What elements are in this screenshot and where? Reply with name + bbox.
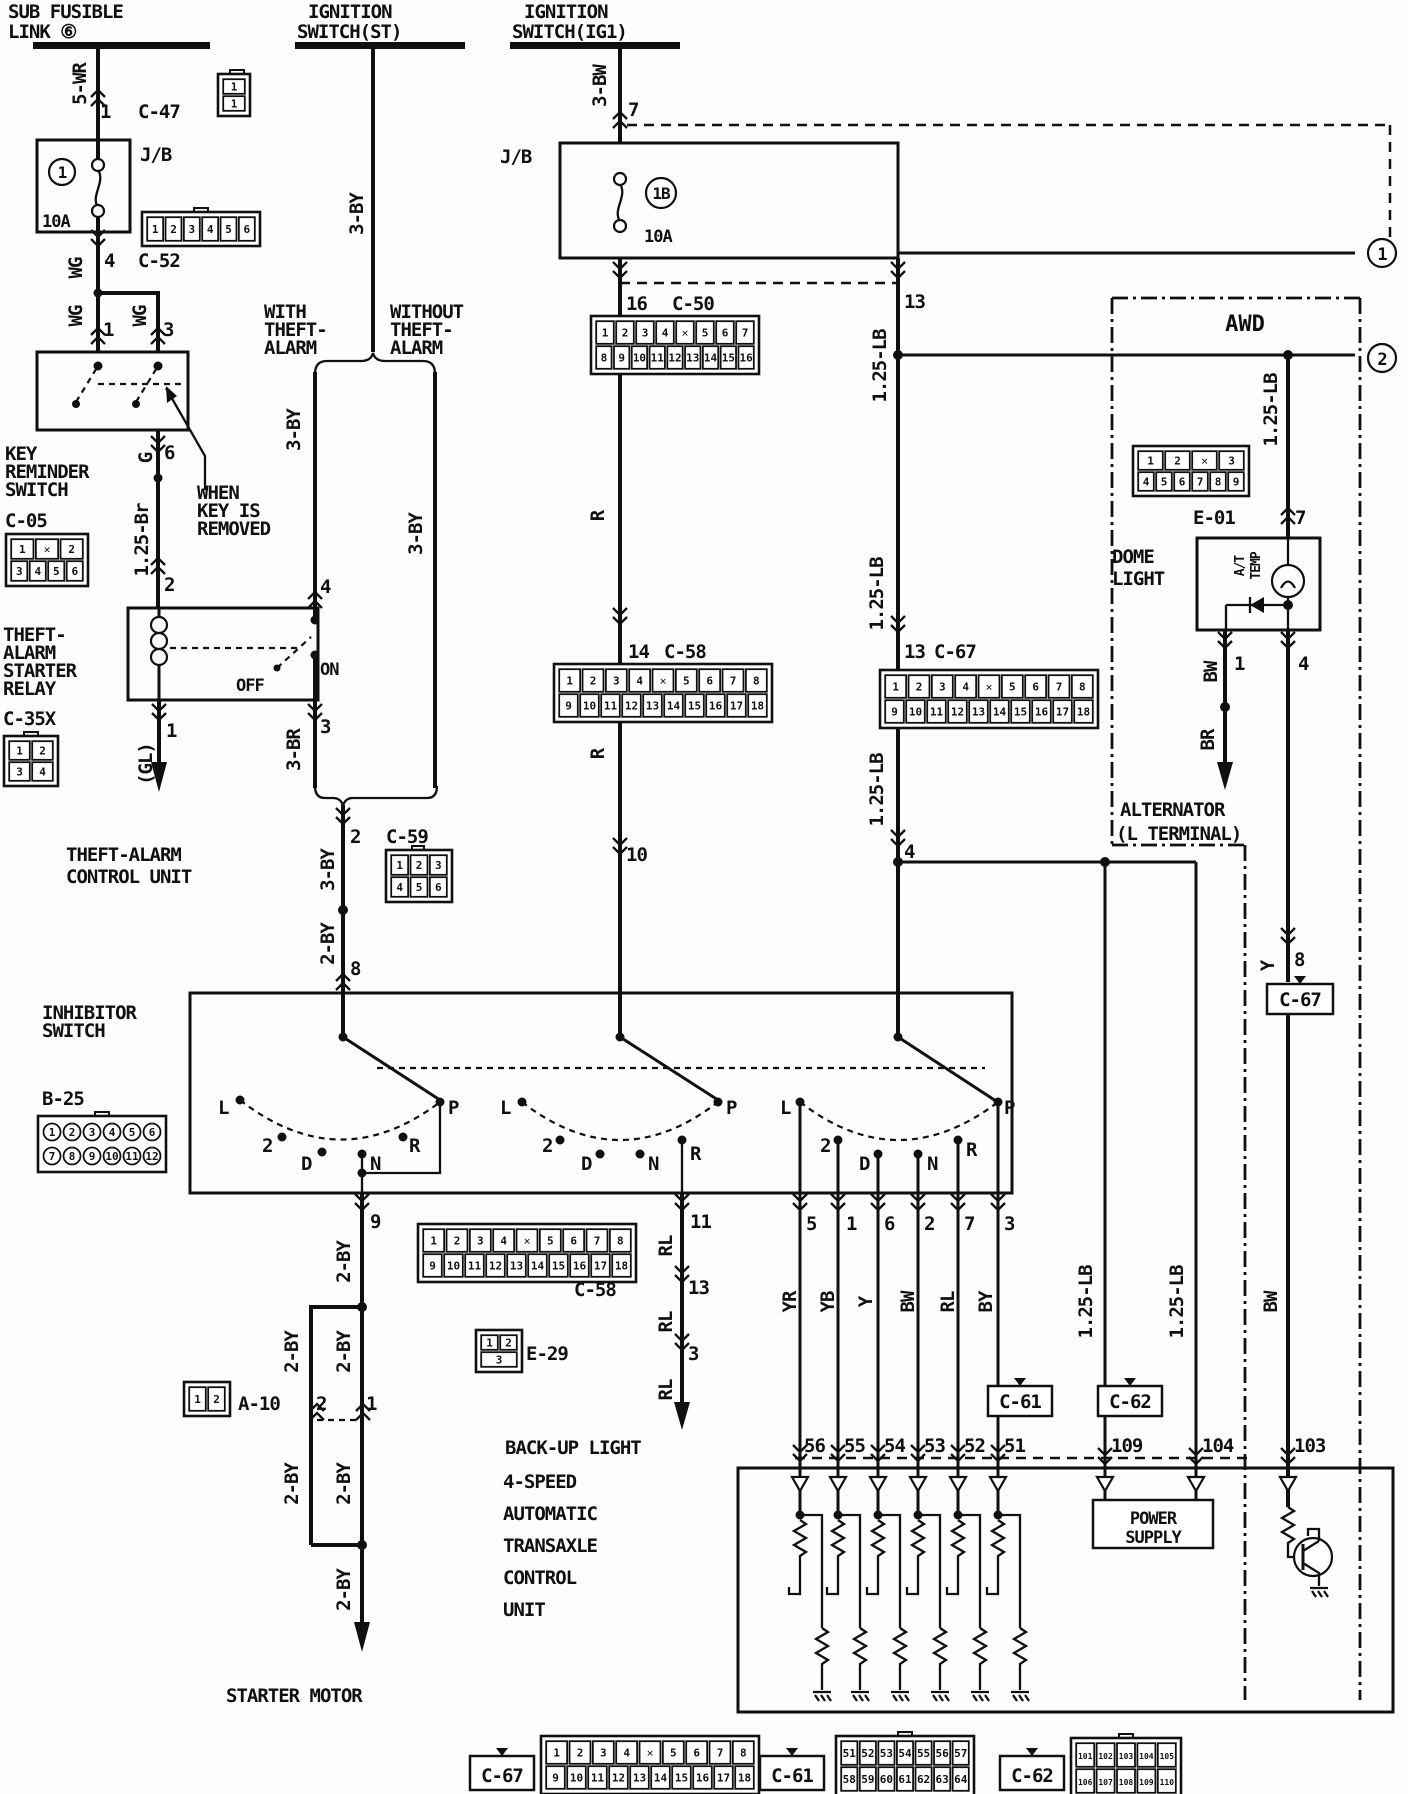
- wire-2by-1: 2-BY: [333, 1240, 355, 1283]
- tag-c62-bottom: C-62: [1011, 1765, 1053, 1787]
- svg-text:3: 3: [16, 565, 23, 578]
- label-with-3: ALARM: [264, 337, 317, 359]
- pin-dome-4: 4: [1298, 653, 1309, 675]
- svg-text:110: 110: [1160, 1778, 1175, 1787]
- svg-text:3: 3: [435, 859, 442, 872]
- svg-text:5: 5: [129, 1126, 136, 1139]
- svg-text:55: 55: [917, 1747, 930, 1760]
- svg-text:13: 13: [510, 1260, 523, 1273]
- svg-text:14: 14: [993, 706, 1007, 719]
- svg-text:2: 2: [170, 223, 177, 236]
- svg-text:7: 7: [1197, 476, 1204, 489]
- svg-text:60: 60: [880, 1773, 893, 1786]
- svg-text:2: 2: [39, 745, 46, 758]
- svg-text:3: 3: [189, 223, 196, 236]
- label-e01: E-01: [1193, 507, 1235, 529]
- svg-text:63: 63: [936, 1773, 949, 1786]
- wire-rl4: RL: [937, 1291, 959, 1312]
- svg-text:17: 17: [594, 1260, 607, 1273]
- svg-text:17: 17: [1056, 706, 1069, 719]
- svg-text:1: 1: [1147, 455, 1154, 468]
- svg-text:18: 18: [1077, 706, 1090, 719]
- svg-text:8: 8: [617, 1235, 624, 1248]
- svg-text:2: 2: [69, 1126, 76, 1139]
- wire-bw-right: BW: [1260, 1290, 1282, 1312]
- svg-text:4: 4: [34, 565, 41, 578]
- wire-125br: 1.25-Br: [131, 503, 153, 577]
- label-power-2: SUPPLY: [1125, 1528, 1182, 1548]
- wire-2by-merge: 2-BY: [317, 922, 339, 965]
- fuse1-number: 1: [58, 163, 67, 182]
- fuse2-number: 1B: [652, 184, 671, 203]
- svg-text:5: 5: [683, 675, 690, 688]
- label-c58-2: C-58: [574, 1279, 616, 1301]
- pin-dome-1: 1: [1234, 653, 1245, 675]
- svg-text:4: 4: [207, 223, 214, 236]
- svg-text:5: 5: [416, 881, 423, 894]
- svg-text:102: 102: [1098, 1752, 1113, 1761]
- sw1-pos-r: R: [409, 1135, 421, 1157]
- pin-krs-1: 1: [103, 319, 114, 341]
- wire-3by-st: 3-BY: [346, 192, 368, 235]
- svg-text:✕: ✕: [1201, 455, 1208, 468]
- svg-text:13: 13: [972, 706, 985, 719]
- svg-text:64: 64: [954, 1773, 968, 1786]
- label-without-3: ALARM: [390, 337, 443, 359]
- label-at-temp-1: A/T: [1233, 555, 1248, 577]
- sw2-pos-d: D: [581, 1153, 592, 1175]
- svg-text:12: 12: [489, 1260, 502, 1273]
- label-dome-2: LIGHT: [1112, 568, 1165, 590]
- wire-2by-3: 2-BY: [333, 1330, 355, 1373]
- svg-text:2: 2: [577, 1747, 584, 1760]
- pin-c67-8: 8: [1294, 949, 1305, 971]
- svg-text:10: 10: [633, 352, 646, 365]
- svg-text:2: 2: [454, 1235, 461, 1248]
- fuse1-rating: 10A: [42, 212, 70, 232]
- pin-c47-1: 1: [100, 101, 111, 123]
- svg-text:7: 7: [730, 675, 737, 688]
- sw2-pos-p: P: [726, 1097, 737, 1119]
- label-c50: C-50: [672, 293, 714, 315]
- svg-text:9: 9: [618, 352, 625, 365]
- pin-tcu-55: 55: [844, 1435, 865, 1457]
- pin-tcu-54: 54: [884, 1435, 905, 1457]
- svg-text:1: 1: [602, 327, 609, 340]
- svg-text:6: 6: [1179, 476, 1186, 489]
- pin-tcu-104: 104: [1202, 1435, 1234, 1457]
- wire-3br: 3-BR: [283, 728, 305, 771]
- svg-text:5: 5: [1009, 681, 1016, 694]
- pin-inhibitor-11: 11: [690, 1211, 711, 1233]
- tag-c62: C-62: [1109, 1391, 1151, 1413]
- svg-text:1: 1: [19, 543, 26, 556]
- svg-text:1: 1: [231, 81, 238, 94]
- svg-text:✕: ✕: [44, 543, 51, 556]
- pin-tcu-109: 109: [1111, 1435, 1143, 1457]
- svg-text:10: 10: [447, 1260, 460, 1273]
- svg-text:3: 3: [16, 766, 23, 779]
- svg-text:4: 4: [662, 327, 669, 340]
- pin-tcu-56: 56: [804, 1435, 825, 1457]
- svg-text:1: 1: [566, 675, 573, 688]
- svg-text:6: 6: [706, 675, 713, 688]
- svg-text:3: 3: [939, 681, 946, 694]
- svg-text:2: 2: [505, 1337, 512, 1350]
- svg-text:10: 10: [105, 1150, 118, 1163]
- label-c58: C-58: [664, 641, 706, 663]
- svg-text:9: 9: [89, 1150, 96, 1163]
- pin-relay-2: 2: [164, 574, 174, 596]
- label-c67: C-67: [934, 641, 976, 663]
- svg-text:6: 6: [693, 1747, 700, 1760]
- label-theft-cu-1: THEFT-ALARM: [66, 844, 181, 866]
- sw3-pos-p: P: [1004, 1097, 1015, 1119]
- pin-a10-2: 2: [316, 1393, 326, 1415]
- wire-by: BY: [975, 1290, 997, 1312]
- svg-text:8: 8: [601, 352, 608, 365]
- svg-text:16: 16: [696, 1772, 710, 1785]
- svg-text:2: 2: [916, 681, 923, 694]
- pin-c58-13: 13: [688, 1277, 709, 1299]
- svg-text:1: 1: [152, 223, 159, 236]
- svg-text:1: 1: [486, 1337, 493, 1350]
- wire-125lb-6: 1.25-LB: [1166, 1265, 1188, 1339]
- label-off: OFF: [236, 676, 264, 696]
- svg-text:8: 8: [1079, 681, 1086, 694]
- label-sub-fusible-2: LINK ⑥: [8, 21, 76, 43]
- wire-2by-4: 2-BY: [281, 1462, 303, 1505]
- wire-2by-5: 2-BY: [333, 1462, 355, 1505]
- svg-text:✕: ✕: [986, 681, 993, 694]
- wire-y2: Y: [855, 1295, 877, 1307]
- fuse2-rating: 10A: [644, 227, 672, 247]
- svg-text:1: 1: [892, 681, 899, 694]
- pin-krs-3: 3: [163, 319, 174, 341]
- svg-text:12: 12: [145, 1150, 158, 1163]
- pin-relay-1: 1: [166, 720, 177, 742]
- svg-text:11: 11: [651, 352, 665, 365]
- svg-text:11: 11: [125, 1150, 139, 1163]
- svg-text:13: 13: [633, 1772, 646, 1785]
- pin-sw3-1: 1: [846, 1213, 857, 1235]
- wire-wg-2: WG: [65, 305, 87, 326]
- label-alternator-1: ALTERNATOR: [1120, 799, 1226, 821]
- svg-text:56: 56: [936, 1747, 950, 1760]
- svg-text:15: 15: [722, 352, 735, 365]
- wire-y: Y: [1257, 959, 1279, 971]
- label-dome-1: DOME: [1112, 546, 1154, 568]
- label-when-3: REMOVED: [197, 518, 271, 540]
- svg-text:7: 7: [594, 1235, 601, 1248]
- svg-text:3: 3: [496, 1354, 503, 1367]
- svg-text:52: 52: [861, 1747, 874, 1760]
- svg-text:14: 14: [654, 1772, 668, 1785]
- svg-text:107: 107: [1098, 1778, 1113, 1787]
- svg-text:6: 6: [71, 565, 78, 578]
- wire-125lb-1: 1.25-LB: [869, 329, 891, 403]
- svg-text:4: 4: [39, 766, 46, 779]
- tag-c61: C-61: [999, 1391, 1041, 1413]
- label-alternator-2: (L TERMINAL): [1116, 823, 1241, 845]
- svg-text:2: 2: [622, 327, 629, 340]
- wire-3bw: 3-BW: [589, 64, 611, 107]
- svg-text:3: 3: [600, 1747, 607, 1760]
- label-theft-relay-4: RELAY: [3, 678, 57, 700]
- svg-text:6: 6: [1032, 681, 1039, 694]
- svg-text:6: 6: [244, 223, 251, 236]
- wire-yr: YR: [779, 1290, 801, 1312]
- label-c47: C-47: [138, 101, 180, 123]
- svg-text:18: 18: [751, 700, 764, 713]
- svg-text:16: 16: [1035, 706, 1049, 719]
- label-c52: C-52: [138, 250, 180, 272]
- svg-text:59: 59: [861, 1773, 874, 1786]
- svg-text:2: 2: [416, 859, 423, 872]
- svg-text:6: 6: [149, 1126, 156, 1139]
- svg-text:9: 9: [429, 1260, 436, 1273]
- svg-text:11: 11: [930, 706, 944, 719]
- svg-text:2: 2: [68, 543, 75, 556]
- sw1-pos-d: D: [301, 1153, 312, 1175]
- svg-text:54: 54: [898, 1747, 912, 1760]
- pin-e01-7: 7: [1295, 507, 1306, 529]
- pin-c59-2: 2: [350, 826, 360, 848]
- pin-jb-7: 7: [628, 99, 639, 121]
- svg-text:1: 1: [194, 1393, 201, 1406]
- svg-text:14: 14: [531, 1260, 545, 1273]
- pin-c50-13: 13: [904, 291, 925, 313]
- pin-sw3-5: 5: [806, 1213, 817, 1235]
- wire-gl: (GL): [135, 743, 157, 785]
- svg-text:16: 16: [573, 1260, 587, 1273]
- pin-c58-14: 14: [628, 641, 649, 663]
- svg-text:12: 12: [612, 1772, 625, 1785]
- svg-text:7: 7: [49, 1150, 56, 1163]
- label-ign-st-2: SWITCH(ST): [297, 21, 401, 43]
- svg-text:15: 15: [688, 700, 701, 713]
- svg-text:1: 1: [16, 745, 23, 758]
- svg-text:17: 17: [730, 700, 743, 713]
- pin-c50-16: 16: [626, 293, 647, 315]
- svg-text:9: 9: [552, 1772, 559, 1785]
- svg-text:8: 8: [69, 1150, 76, 1163]
- pin-e29-3: 3: [688, 1343, 699, 1365]
- label-awd: AWD: [1225, 312, 1265, 337]
- label-tcu-2: AUTOMATIC: [503, 1503, 598, 1525]
- label-b25: B-25: [42, 1088, 84, 1110]
- label-key-reminder-3: SWITCH: [5, 479, 68, 501]
- svg-text:16: 16: [709, 700, 723, 713]
- pin-inhibitor-4: 4: [904, 841, 915, 863]
- svg-text:13: 13: [646, 700, 659, 713]
- svg-text:4: 4: [500, 1235, 507, 1248]
- wire-yb: YB: [817, 1291, 839, 1312]
- svg-text:5: 5: [53, 565, 60, 578]
- label-c59: C-59: [386, 826, 428, 848]
- svg-text:4: 4: [1143, 476, 1150, 489]
- sw1-pos-p: P: [448, 1097, 459, 1119]
- svg-text:10: 10: [909, 706, 922, 719]
- page-marker-2: 2: [1377, 350, 1386, 370]
- wire-r-2: R: [587, 747, 609, 759]
- pin-sw3-6: 6: [884, 1213, 895, 1235]
- sw3-pos-l: L: [780, 1097, 791, 1119]
- pin-tcu-53: 53: [924, 1435, 945, 1457]
- svg-text:18: 18: [615, 1260, 628, 1273]
- wire-5wr: 5-WR: [69, 62, 91, 105]
- pin-inhibitor-8: 8: [350, 958, 361, 980]
- pin-relay-4: 4: [320, 576, 331, 598]
- svg-text:104: 104: [1139, 1752, 1154, 1761]
- svg-text:4: 4: [636, 675, 643, 688]
- svg-text:10: 10: [583, 700, 596, 713]
- wire-rl-1: RL: [655, 1235, 677, 1256]
- label-sub-fusible-1: SUB FUSIBLE: [8, 1, 123, 23]
- label-at-temp-2: TEMP: [1249, 551, 1264, 579]
- svg-text:15: 15: [1014, 706, 1027, 719]
- svg-text:7: 7: [1056, 681, 1063, 694]
- svg-text:5: 5: [225, 223, 232, 236]
- svg-text:2: 2: [1174, 455, 1181, 468]
- svg-text:2: 2: [213, 1393, 220, 1406]
- svg-text:8: 8: [1215, 476, 1222, 489]
- pin-c67-13: 13: [904, 641, 925, 663]
- svg-text:9: 9: [1233, 476, 1240, 489]
- sw3-pos-r: R: [966, 1139, 978, 1161]
- svg-text:3: 3: [642, 327, 649, 340]
- wire-wg-1: WG: [65, 257, 87, 278]
- svg-text:108: 108: [1119, 1778, 1134, 1787]
- sw3-pos-2: 2: [820, 1135, 830, 1157]
- svg-text:106: 106: [1078, 1778, 1093, 1787]
- wire-3by-without: 3-BY: [405, 512, 427, 555]
- wire-wg-3: WG: [129, 305, 151, 326]
- svg-text:11: 11: [468, 1260, 482, 1273]
- label-e29: E-29: [526, 1343, 568, 1365]
- wire-2by-2: 2-BY: [281, 1330, 303, 1373]
- label-tcu-4: CONTROL: [503, 1567, 577, 1589]
- wire-125lb-3: 1.25-LB: [866, 753, 888, 827]
- svg-text:4: 4: [396, 881, 403, 894]
- svg-text:11: 11: [604, 700, 618, 713]
- wire-bw2: BW: [897, 1290, 919, 1312]
- tag-c67-bottom: C-67: [481, 1765, 523, 1787]
- wire-bw-dome: BW: [1200, 660, 1222, 682]
- svg-text:✕: ✕: [660, 675, 667, 688]
- source-bars: [33, 42, 680, 49]
- page-marker-1: 1: [1377, 245, 1387, 265]
- svg-text:109: 109: [1139, 1778, 1154, 1787]
- svg-text:6: 6: [570, 1235, 577, 1248]
- svg-text:57: 57: [954, 1747, 967, 1760]
- svg-text:✕: ✕: [647, 1747, 654, 1760]
- svg-text:18: 18: [738, 1772, 751, 1785]
- wiring-diagram-page: 11 123456 1✕23456 1234 1234✕567891011121…: [0, 0, 1408, 1794]
- svg-text:5: 5: [702, 327, 709, 340]
- svg-text:1: 1: [396, 859, 403, 872]
- svg-text:58: 58: [843, 1773, 856, 1786]
- svg-text:17: 17: [717, 1772, 730, 1785]
- sw1-pos-2: 2: [262, 1135, 272, 1157]
- svg-text:12: 12: [951, 706, 964, 719]
- svg-text:7: 7: [717, 1747, 724, 1760]
- sw2-pos-r: R: [690, 1143, 702, 1165]
- pin-relay-3: 3: [320, 716, 331, 738]
- pin-inhibitor-10: 10: [626, 844, 647, 866]
- svg-text:5: 5: [547, 1235, 554, 1248]
- svg-text:10: 10: [570, 1772, 583, 1785]
- svg-text:62: 62: [917, 1773, 930, 1786]
- sw2-pos-l: L: [500, 1097, 511, 1119]
- svg-text:53: 53: [880, 1747, 893, 1760]
- label-theft-cu-2: CONTROL UNIT: [66, 866, 192, 888]
- sw3-pos-n: N: [927, 1153, 938, 1175]
- svg-text:12: 12: [625, 700, 638, 713]
- label-ign-st-1: IGNITION: [308, 1, 392, 23]
- label-jb-right: J/B: [500, 146, 532, 168]
- label-starter-motor: STARTER MOTOR: [226, 1685, 363, 1707]
- wiring-diagram: 11 123456 1✕23456 1234 1234✕567891011121…: [0, 0, 1408, 1794]
- svg-text:✕: ✕: [682, 327, 689, 340]
- svg-text:9: 9: [565, 700, 572, 713]
- pin-c52-4: 4: [104, 250, 115, 272]
- svg-text:1: 1: [553, 1747, 560, 1760]
- wire-rl-2: RL: [655, 1311, 677, 1332]
- pin-a10-1: 1: [366, 1393, 377, 1415]
- tag-c61-bottom: C-61: [771, 1765, 813, 1787]
- wire-125lb-4: 1.25-LB: [1260, 373, 1282, 447]
- svg-text:7: 7: [742, 327, 749, 340]
- wire-3by-with: 3-BY: [283, 408, 305, 451]
- svg-text:103: 103: [1119, 1752, 1134, 1761]
- svg-text:4: 4: [623, 1747, 630, 1760]
- svg-text:14: 14: [667, 700, 681, 713]
- label-tcu-1: 4-SPEED: [503, 1471, 577, 1493]
- wire-3by-merge: 3-BY: [317, 848, 339, 891]
- svg-text:1: 1: [430, 1235, 437, 1248]
- svg-text:15: 15: [552, 1260, 565, 1273]
- wire-2by-6: 2-BY: [333, 1568, 355, 1611]
- svg-text:16: 16: [739, 352, 753, 365]
- label-backup-light: BACK-UP LIGHT: [505, 1437, 641, 1459]
- label-power-1: POWER: [1130, 1509, 1178, 1529]
- svg-text:3: 3: [1228, 455, 1235, 468]
- svg-text:6: 6: [435, 881, 442, 894]
- pin-krs-6: 6: [164, 442, 175, 464]
- svg-text:5: 5: [1161, 476, 1168, 489]
- sw3-pos-d: D: [859, 1153, 870, 1175]
- wire-125lb-2: 1.25-LB: [866, 557, 888, 631]
- pin-tcu-103: 103: [1294, 1435, 1326, 1457]
- tag-c67: C-67: [1279, 989, 1321, 1011]
- svg-text:13: 13: [686, 352, 699, 365]
- label-inhibitor-2: SWITCH: [42, 1020, 105, 1042]
- svg-text:101: 101: [1078, 1752, 1093, 1761]
- wire-125lb-5: 1.25-LB: [1075, 1265, 1097, 1339]
- svg-text:4: 4: [962, 681, 969, 694]
- svg-text:3: 3: [89, 1126, 96, 1139]
- svg-text:2: 2: [590, 675, 597, 688]
- pin-sw3-2: 2: [924, 1213, 934, 1235]
- wire-r-1: R: [587, 509, 609, 521]
- svg-text:15: 15: [675, 1772, 688, 1785]
- label-on: ON: [320, 660, 339, 680]
- svg-text:12: 12: [668, 352, 681, 365]
- svg-text:1: 1: [231, 98, 238, 111]
- label-c05: C-05: [5, 510, 47, 532]
- label-ign-ig1-1: IGNITION: [524, 1, 608, 23]
